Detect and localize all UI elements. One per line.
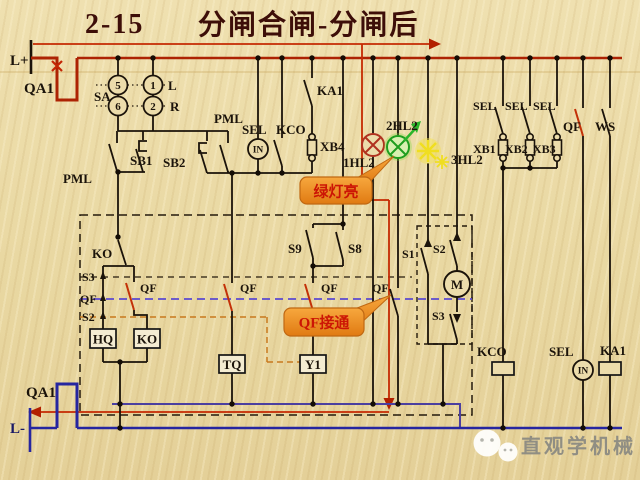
qf-aux-hq (126, 283, 134, 310)
pml-right-contact (220, 145, 228, 172)
pml-left-label: PML (63, 171, 92, 186)
sel2-label: SEL (505, 99, 528, 113)
1hl2-label: 1HL2 (343, 155, 375, 170)
qf-operated-blades (126, 109, 583, 311)
relay-in-bottom: IN (573, 360, 593, 380)
xb3-label: XB3 (533, 142, 556, 156)
sb2-button (199, 143, 207, 173)
s2-arrow (453, 232, 461, 241)
2hl2-label: 2HL2 (386, 118, 418, 133)
coil-ka1 (599, 362, 621, 375)
page-title: 分闸合闸-分闸后 (198, 8, 419, 41)
qf-y1-label: QF (321, 281, 338, 295)
sel1-contact (495, 107, 503, 134)
tq-label: TQ (223, 357, 242, 372)
s2-edge-label: S2 (82, 310, 95, 324)
s1-arrow (424, 238, 432, 247)
xb4-label: XB4 (320, 139, 345, 154)
callout-qf-closed: QF接通 (284, 295, 391, 336)
kco-contact (274, 140, 282, 166)
s1-contact (421, 248, 428, 274)
relay-schematic: 2-15 分闸合闸-分闸后 L+ QA1 (0, 0, 640, 480)
svg-text:5: 5 (115, 80, 121, 92)
qf-aux-lamp (390, 289, 398, 316)
svg-text:IN: IN (253, 146, 264, 156)
s8-contact (336, 232, 343, 260)
svg-text:IN: IN (578, 367, 589, 377)
l-plus-label: L+ (10, 53, 29, 69)
ko-coil-label: KO (137, 332, 157, 347)
mid-return-bus (112, 404, 460, 428)
xb1-label: XB1 (473, 142, 496, 156)
sel-top-label: SEL (242, 122, 267, 137)
ka1-contact (304, 80, 312, 106)
qf-right-label: QF (563, 119, 581, 134)
sel-bottom-label: SEL (549, 344, 574, 359)
s2-motor-contact (450, 240, 457, 266)
qf-aux-tq (224, 284, 232, 311)
svg-text:QF接通: QF接通 (299, 314, 350, 332)
l-minus-label: L- (10, 421, 25, 437)
s1-label: S1 (402, 247, 415, 261)
svg-text:绿灯亮: 绿灯亮 (313, 183, 358, 201)
qf-edge-label: QF (80, 292, 97, 306)
s9-label: S9 (288, 241, 302, 256)
sb2-label: SB2 (163, 155, 185, 170)
yellow-lamp-3hl2 (415, 138, 449, 169)
ka1-top-label: KA1 (317, 83, 343, 98)
svg-text:2: 2 (150, 101, 156, 113)
kco-bottom-label: KCO (477, 344, 507, 359)
ka1-bottom-label: KA1 (600, 343, 626, 358)
slide: 2-15 分闸合闸-分闸后 L+ QA1 (0, 0, 640, 480)
qf-lamp-label: QF (372, 281, 389, 295)
connector-xb4 (308, 134, 317, 161)
qa1-top-label: QA1 (24, 81, 54, 97)
qa1-bottom-label: QA1 (26, 385, 56, 401)
motor-m: M (444, 271, 470, 297)
dir-r-label: R (170, 99, 180, 114)
s3-edge-label: S3 (82, 270, 95, 284)
red-lamp-1hl2 (362, 134, 384, 156)
svg-text:M: M (451, 277, 463, 292)
qf-hq-label: QF (140, 281, 157, 295)
kco-top-label: KCO (276, 122, 306, 137)
sb1-label: SB1 (130, 153, 152, 168)
s3-arrow (453, 314, 461, 323)
qf-tq-label: QF (240, 281, 257, 295)
watermark: 直观学机械 (474, 430, 637, 462)
pml-left-contact (109, 144, 117, 171)
svg-text:6: 6 (115, 101, 121, 113)
ws-label: WS (595, 119, 615, 134)
s9-contact (306, 230, 313, 258)
ko-contact-label: KO (92, 246, 112, 261)
wechat-icon (474, 430, 518, 462)
watermark-text: 直观学机械 (521, 434, 636, 458)
s2-motor-label: S2 (433, 242, 446, 256)
dir-l-label: L (168, 78, 177, 93)
qf-aux-y1 (305, 284, 313, 311)
relay-in-top: IN (248, 139, 268, 159)
sel3-label: SEL (533, 99, 556, 113)
ko-contact (118, 240, 126, 265)
s3-motor-label: S3 (432, 309, 445, 323)
s8-label: S8 (348, 241, 362, 256)
y1-label: Y1 (305, 357, 321, 372)
svg-text:1: 1 (150, 80, 156, 92)
title-code: 2-15 (85, 9, 144, 40)
xb2-label: XB2 (505, 142, 528, 156)
sel1-label: SEL (473, 99, 496, 113)
hq-label: HQ (93, 332, 113, 347)
flow-arrow-right (429, 39, 441, 50)
coil-kco (492, 362, 514, 375)
sa-label: SA (94, 89, 111, 104)
pml-right-label: PML (214, 111, 243, 126)
